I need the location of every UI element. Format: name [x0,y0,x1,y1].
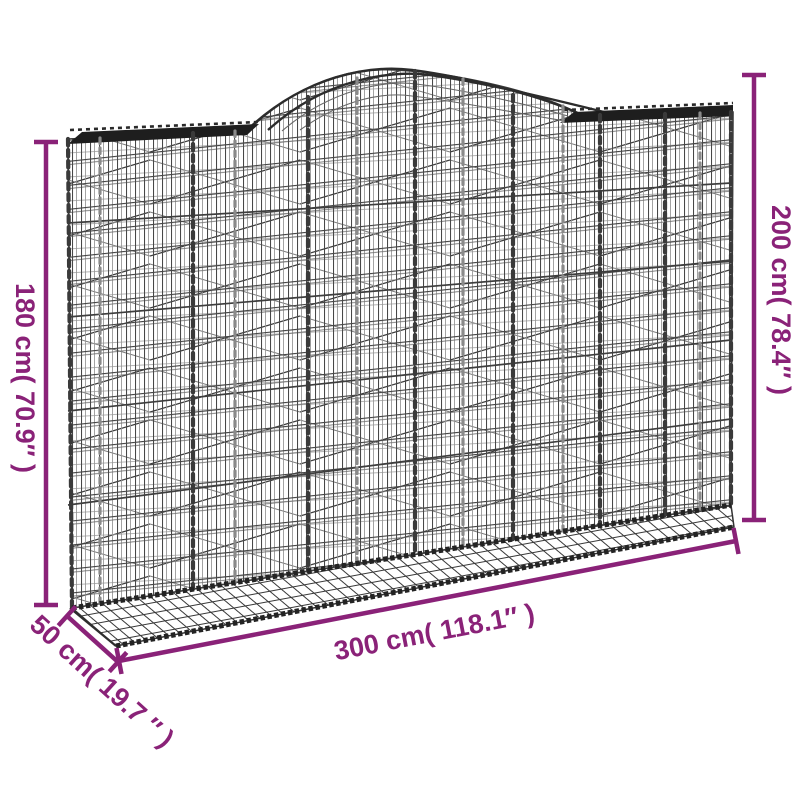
gabion-dimension-diagram: 180 cm( 70.9″ ) 200 cm( 78.4″ ) 300 cm( … [0,0,800,800]
dimension-height-left: 180 cm( 70.9″ ) [10,142,58,605]
diagram-canvas: 180 cm( 70.9″ ) 200 cm( 78.4″ ) 300 cm( … [0,0,800,800]
dimension-label-height-left: 180 cm( 70.9″ ) [10,283,40,473]
dimension-label-width: 300 cm( 118.1″ ) [332,598,538,666]
dimension-height-right: 200 cm( 78.4″ ) [742,75,796,520]
dimension-label-height-right: 200 cm( 78.4″ ) [766,205,796,395]
